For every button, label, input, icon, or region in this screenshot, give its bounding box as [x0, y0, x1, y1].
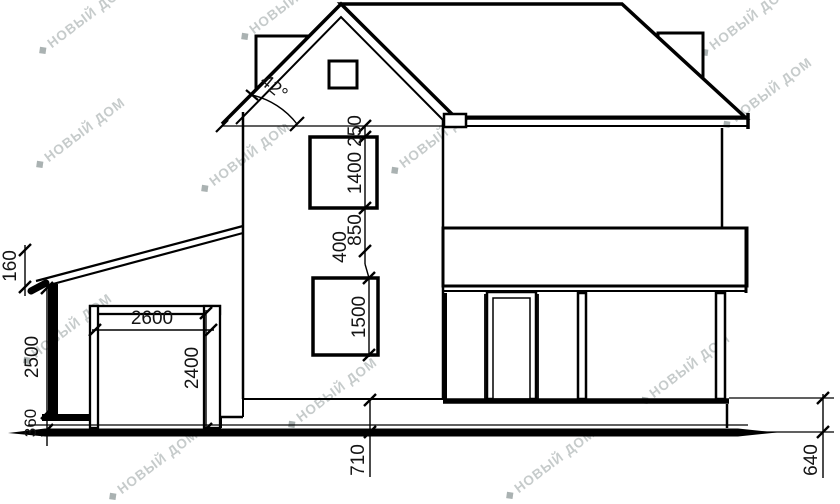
- elevation-drawing-canvas: ◆НОВЫЙ ДОМ ◆НОВЫЙ ДОМ ◆НОВЫЙ ДОМ ◆НОВЫЙ …: [0, 0, 840, 492]
- elevation-drawing: 42° 250 1400 850 400 1500 2600 2400 2500…: [0, 0, 840, 492]
- gable-window: [329, 61, 357, 88]
- dimension-label-160: 160: [0, 250, 21, 282]
- veranda: [443, 292, 729, 428]
- dimension-label-1400: 1400: [345, 152, 366, 194]
- veranda-post: [578, 293, 586, 399]
- dimension-label-2600: 2600: [131, 308, 173, 329]
- carport-roof-upper: [36, 226, 243, 281]
- balcony-band: [443, 228, 747, 293]
- dimension-label-710: 710: [348, 444, 369, 476]
- dimension-label-1500: 1500: [349, 296, 370, 338]
- garage-left-jamb: [90, 306, 98, 428]
- dimension-label-360: 360: [21, 409, 40, 437]
- dimension-label-250: 250: [345, 115, 366, 147]
- dimension-label-640: 640: [801, 444, 822, 476]
- veranda-right-wall: [716, 293, 725, 399]
- dimension-label-2500: 2500: [22, 336, 43, 378]
- carport-post-base: [42, 414, 92, 421]
- carport-post: [48, 284, 58, 414]
- second-floor-window: [310, 137, 377, 208]
- carport-roof-lower: [38, 233, 243, 288]
- plinth-lines: [221, 399, 443, 428]
- dimension-label-400: 400: [330, 231, 351, 263]
- dimension-label-2400: 2400: [182, 347, 203, 389]
- ground-line: [8, 425, 777, 437]
- veranda-door: [487, 292, 536, 399]
